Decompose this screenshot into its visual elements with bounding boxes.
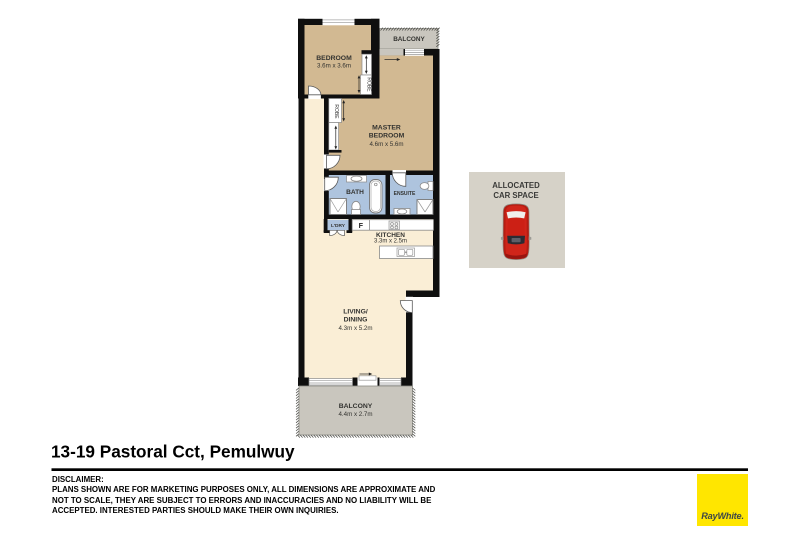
svg-text:L'DRY: L'DRY [331,223,346,229]
svg-text:ROBE: ROBE [365,77,371,92]
svg-text:4.4m x 2.7m: 4.4m x 2.7m [338,411,372,418]
svg-text:F: F [359,221,364,230]
svg-text:NOT TO SCALE, THEY ARE SUBJECT: NOT TO SCALE, THEY ARE SUBJECT TO ERRORS… [52,496,431,505]
svg-text:PLANS SHOWN ARE FOR MARKETING: PLANS SHOWN ARE FOR MARKETING PURPOSES O… [52,485,436,494]
svg-text:BALCONY: BALCONY [393,36,425,43]
svg-text:BEDROOM: BEDROOM [369,133,405,140]
svg-text:13-19 Pastoral Cct, Pemulwuy: 13-19 Pastoral Cct, Pemulwuy [51,442,295,462]
svg-text:3.3m x 2.5m: 3.3m x 2.5m [374,238,407,244]
svg-text:4.6m x 5.6m: 4.6m x 5.6m [369,141,403,148]
svg-text:3.6m x 3.6m: 3.6m x 3.6m [317,63,351,70]
svg-text:4.3m x 5.2m: 4.3m x 5.2m [338,325,372,332]
svg-text:CAR SPACE: CAR SPACE [493,191,538,200]
svg-text:ALLOCATED: ALLOCATED [492,181,540,190]
svg-text:ROBE: ROBE [333,104,339,119]
svg-text:BATH: BATH [346,189,364,196]
svg-text:DISCLAIMER:: DISCLAIMER: [52,475,104,484]
svg-text:ACCEPTED. INTERESTED PARTIES S: ACCEPTED. INTERESTED PARTIES SHOULD MAKE… [52,506,339,515]
svg-text:ENSUITE: ENSUITE [394,191,416,197]
svg-text:MASTER: MASTER [372,125,401,132]
svg-text:LIVING/: LIVING/ [343,309,368,316]
svg-text:BALCONY: BALCONY [339,403,373,410]
svg-text:RayWhite.: RayWhite. [701,511,744,521]
svg-text:DINING: DINING [344,317,368,324]
svg-text:BEDROOM: BEDROOM [316,55,352,62]
